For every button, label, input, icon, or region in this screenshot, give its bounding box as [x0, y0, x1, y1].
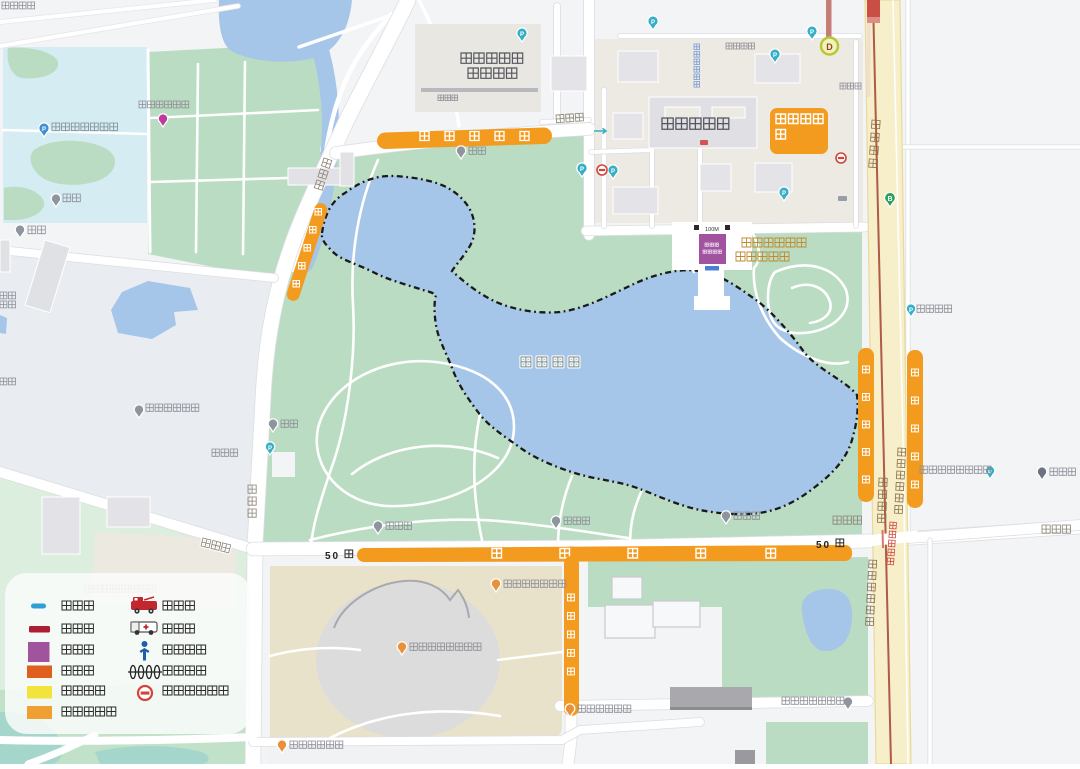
svg-text:P: P — [773, 53, 777, 59]
svg-text:P: P — [611, 169, 615, 175]
svg-text:P: P — [909, 308, 913, 314]
svg-text:100M: 100M — [705, 227, 719, 233]
svg-text:P: P — [651, 20, 655, 26]
svg-text:P: P — [520, 32, 524, 38]
svg-text:50: 50 — [816, 540, 831, 551]
svg-text:P: P — [810, 30, 814, 36]
svg-text:B: B — [887, 196, 892, 203]
svg-text:D: D — [826, 42, 833, 52]
svg-text:P: P — [580, 167, 584, 173]
svg-text:P: P — [782, 191, 786, 197]
svg-text:P: P — [268, 446, 272, 452]
svg-text:50: 50 — [325, 551, 340, 562]
svg-text:P: P — [42, 127, 46, 133]
